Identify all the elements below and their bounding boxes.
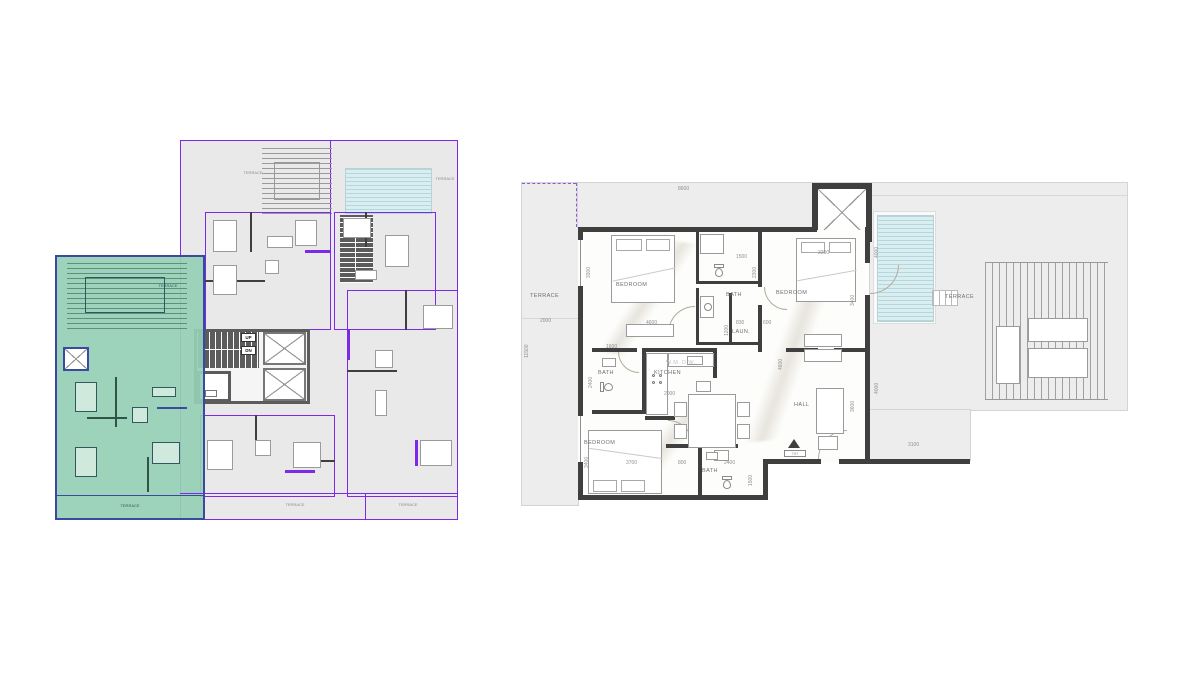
- label-laundry: LAUN.: [732, 329, 750, 335]
- floor-plan-canvas: TERRACE TERRACE DN UP DN: [0, 0, 1200, 674]
- hall-sofa: [816, 388, 844, 434]
- furniture-table: [132, 407, 148, 423]
- boundary-dashed-line: [576, 183, 577, 227]
- kitchen-counter: [646, 353, 668, 415]
- green-elevator: [63, 347, 89, 371]
- bed-master: [611, 235, 675, 303]
- dim-bed3-width: 3700: [626, 460, 637, 466]
- dim-closet2: 800: [678, 460, 686, 466]
- terrace-grid-line: [870, 195, 1127, 196]
- terrace-band-divider: [365, 493, 366, 520]
- wall-segment: [115, 377, 117, 427]
- green-terrace-band-label: TERRACE: [105, 503, 155, 508]
- wall-segment: [157, 407, 187, 409]
- dim-bed1-window: 3300: [586, 267, 592, 278]
- label-bath2: BATH: [598, 370, 614, 376]
- label-kitchen: KITCHEN: [654, 370, 681, 376]
- roof-terrace-label: TERRACE: [241, 170, 265, 175]
- label-appliances: W.M. D.W.: [666, 360, 696, 366]
- label-bedroom1: BEDROOM: [616, 282, 647, 288]
- furniture-bed: [75, 447, 97, 477]
- dim-bed1-width: 4600: [646, 320, 657, 326]
- furniture-bed: [385, 235, 409, 267]
- terrace-band-label: TERRACE: [373, 502, 443, 507]
- core-dn-tag: DN: [241, 346, 256, 355]
- furniture-sofa: [375, 390, 387, 416]
- washbasin: [706, 452, 718, 460]
- boundary-dashed-line: [522, 183, 576, 184]
- dim-terrace-right-side: 4000: [874, 383, 880, 394]
- furniture-bed: [420, 440, 452, 466]
- chair: [674, 424, 687, 439]
- dim-left-height: 11500: [524, 344, 530, 358]
- furniture-sofa: [267, 236, 293, 248]
- terrace-left: [522, 183, 578, 505]
- hall-side-table: [818, 436, 838, 450]
- furniture-bed: [75, 382, 97, 412]
- elevator-1: [263, 332, 306, 365]
- furniture-table: [375, 350, 393, 368]
- dim-closet: 600: [763, 320, 771, 326]
- furniture-bed: [293, 442, 321, 468]
- hall-bench: [804, 349, 842, 362]
- core-up-tag: UP: [241, 333, 256, 342]
- unit-number-tag: 707: [784, 450, 806, 457]
- dim-top: 8600: [678, 186, 689, 192]
- furniture-bed: [152, 442, 180, 464]
- terrace-right-lower: [870, 410, 970, 460]
- partition: [696, 288, 699, 345]
- roof-pergola-frame: [274, 162, 320, 200]
- partition: [592, 410, 646, 414]
- elevator-2: [263, 368, 306, 401]
- purple-wall-accent: [415, 440, 418, 466]
- wall-segment: [250, 212, 252, 252]
- unit-selected-green[interactable]: TERRACE TERRACE: [55, 255, 205, 520]
- dim-bath3-side: 1500: [748, 475, 754, 486]
- furniture-table: [255, 440, 271, 456]
- dim-pool-side: 4000: [874, 247, 880, 258]
- label-hall: HALL: [794, 402, 809, 408]
- window: [578, 416, 583, 462]
- left-plan: TERRACE TERRACE DN UP DN: [55, 140, 461, 524]
- dim-hall-left: 4600: [778, 359, 784, 370]
- washbasin: [602, 358, 616, 367]
- partition: [696, 230, 699, 284]
- outdoor-furniture: [1028, 318, 1088, 342]
- purple-wall-accent: [347, 330, 350, 360]
- wall-left: [578, 227, 583, 240]
- right-plan: 707 BEDROOM BEDROOM BEDROOM BATH BATH BA…: [518, 178, 1178, 512]
- shower: [700, 234, 724, 254]
- furniture-sofa: [152, 387, 176, 397]
- label-bath1: BATH: [726, 292, 742, 298]
- furniture-bed: [295, 220, 317, 246]
- toilet: [604, 383, 613, 391]
- dim-kitchen-width: 2000: [664, 391, 675, 397]
- outdoor-furniture: [996, 326, 1020, 384]
- partition: [696, 281, 758, 284]
- chair: [696, 381, 711, 392]
- wall-bottom-right: [763, 459, 821, 464]
- dim-bed2-width: 3200: [818, 250, 829, 256]
- green-terrace-label: TERRACE: [153, 283, 183, 288]
- purple-wall-accent: [305, 250, 331, 253]
- partition: [758, 230, 762, 287]
- wall-left: [578, 286, 583, 416]
- roof-pool: [345, 168, 432, 214]
- dim-bath1-side: 2300: [752, 267, 758, 278]
- dim-laun-height: 1200: [724, 325, 730, 336]
- dim-bed2-side: 3400: [850, 295, 856, 306]
- dim-hall-right: 3600: [850, 401, 856, 412]
- outdoor-furniture: [1028, 348, 1088, 378]
- label-terrace-left: TERRACE: [530, 293, 559, 299]
- dim-shower: 1500: [736, 254, 747, 260]
- chair: [737, 402, 750, 417]
- roof-pool-terrace-label: TERRACE: [433, 176, 457, 181]
- dim-bed3-side: 3400: [584, 457, 590, 468]
- washer: [700, 296, 714, 318]
- partition: [645, 348, 717, 352]
- purple-wall-accent: [285, 470, 315, 473]
- toilet: [715, 268, 723, 277]
- dim-bath2-width: 1600: [606, 344, 617, 350]
- dining-table: [688, 394, 736, 448]
- furniture-sofa: [355, 270, 377, 280]
- wall-segment: [147, 457, 149, 492]
- entry-arrow: [788, 439, 800, 448]
- wall-right: [865, 227, 870, 263]
- dim-bath2-side: 2400: [588, 377, 594, 388]
- label-bedroom2: BEDROOM: [776, 290, 807, 296]
- furniture-bed: [343, 218, 371, 238]
- chair: [737, 424, 750, 439]
- dim-terrace-width: 2000: [540, 318, 551, 324]
- toilet: [723, 480, 731, 489]
- wall-segment: [347, 370, 397, 372]
- label-bedroom3: BEDROOM: [584, 440, 615, 446]
- furniture-table: [265, 260, 279, 274]
- dim-laun-width: 830: [736, 320, 744, 326]
- dim-bath3-width: 2400: [724, 460, 735, 466]
- furniture-bed: [213, 265, 237, 295]
- dim-terrace-bottom: 3100: [908, 442, 919, 448]
- furniture-bed: [213, 220, 237, 252]
- partition: [729, 293, 732, 345]
- label-bath3: BATH: [702, 468, 718, 474]
- furniture-bed: [207, 440, 233, 470]
- window: [578, 240, 583, 286]
- terrace-band-label: TERRACE: [255, 502, 335, 507]
- wall-segment: [405, 290, 407, 330]
- wall-bottom-right: [839, 459, 970, 464]
- furniture-bed: [423, 305, 453, 329]
- hall-bench: [804, 334, 842, 347]
- wall-bottom-left: [578, 495, 768, 500]
- wall-step: [763, 459, 768, 500]
- chair: [674, 402, 687, 417]
- wall-segment: [87, 417, 127, 419]
- wall-right: [865, 295, 870, 464]
- label-terrace-right: TERRACE: [945, 294, 974, 300]
